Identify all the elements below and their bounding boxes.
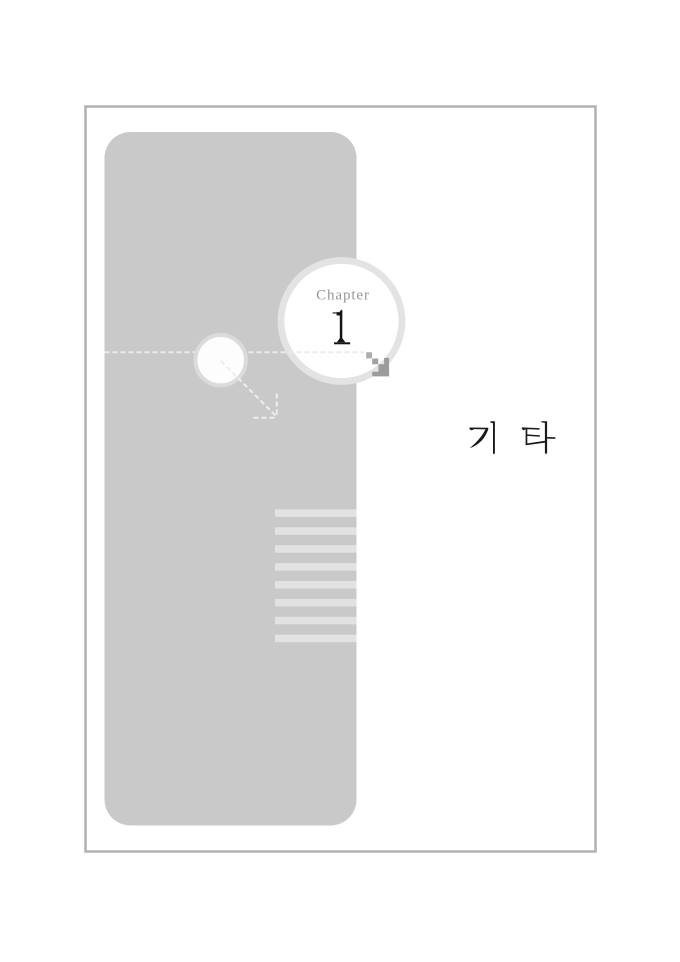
svg-text:Chapter: Chapter <box>316 288 370 304</box>
